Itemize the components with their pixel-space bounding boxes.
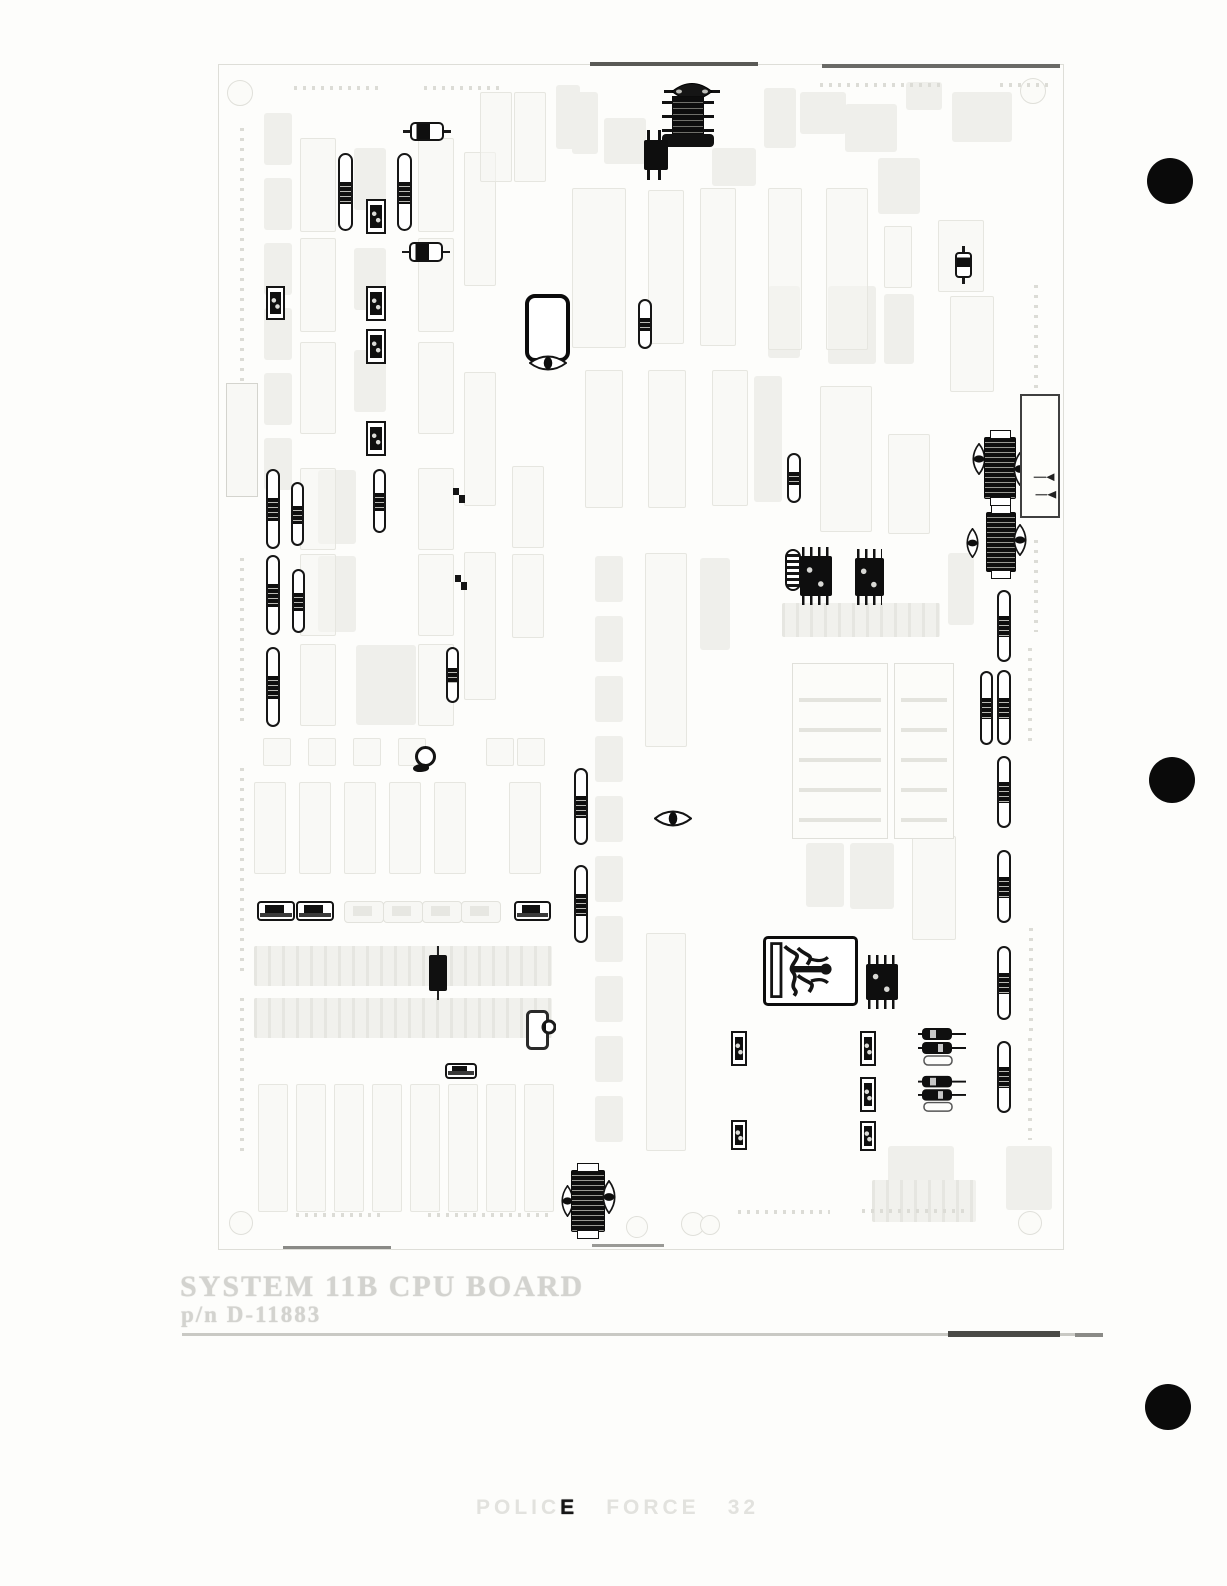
- faint-dots_h-shape: [1000, 80, 1052, 90]
- resistor: [292, 569, 305, 633]
- faint-res-shape: [422, 901, 462, 923]
- resistor: [514, 901, 551, 921]
- diode-pair: [918, 1026, 966, 1068]
- faint-fill-shape: [595, 676, 623, 722]
- faint-dots_h-shape: [862, 1203, 968, 1219]
- resistor: [787, 453, 801, 503]
- faint-circle-shape: [700, 1215, 720, 1235]
- faint-fill-shape: [712, 148, 756, 186]
- faint-v-shape: [418, 138, 454, 232]
- faint-fill-shape: [800, 92, 846, 134]
- faint-v-shape: [308, 738, 336, 766]
- resistor: [266, 555, 280, 635]
- board-edge-line: [590, 62, 758, 66]
- footer-page-number: 32: [728, 1496, 759, 1519]
- component-with-knob: [526, 1010, 556, 1050]
- marker: [413, 746, 435, 772]
- faint-v-shape: [418, 468, 454, 550]
- faint-v-shape: [300, 342, 336, 434]
- faint-dots_v-shape: [232, 998, 252, 1154]
- faint-fill-shape: [754, 376, 782, 502]
- resistor: [257, 901, 295, 921]
- faint-v-shape: [300, 138, 336, 232]
- transistor-small-package: [644, 140, 668, 170]
- binder-hole-dot: [1147, 158, 1193, 204]
- faint-v-shape: [418, 342, 454, 434]
- faint-v-shape: [418, 554, 454, 636]
- faint-dots_h-shape: [296, 1208, 384, 1222]
- faint-dots_h-shape: [738, 1204, 830, 1220]
- faint-v-shape: [884, 226, 912, 288]
- faint-fill-shape: [595, 616, 623, 662]
- faint-v-shape: [700, 188, 736, 346]
- faint-band-shape: [254, 946, 552, 986]
- resistor: [997, 756, 1011, 828]
- faint-dots_h-shape: [294, 82, 380, 94]
- faint-v-shape: [826, 188, 868, 350]
- resistor: [997, 946, 1011, 1020]
- faint-fill-shape: [845, 104, 897, 152]
- board-part-number: p/n D-11883: [181, 1302, 321, 1328]
- jumper-mark: [455, 575, 467, 590]
- jumper-mark: [453, 488, 465, 503]
- board-title: SYSTEM 11B CPU BOARD: [180, 1270, 584, 1304]
- faint-v-shape: [585, 370, 623, 508]
- faint-v-shape: [646, 933, 686, 1151]
- faint-fill-shape: [884, 294, 914, 364]
- footer-word-faint: POLIC: [476, 1496, 560, 1519]
- faint-dots_h-shape: [424, 82, 504, 94]
- binder-hole-dot: [1149, 757, 1195, 803]
- faint-v-shape: [480, 92, 512, 182]
- faint-v-shape: [648, 190, 684, 344]
- component: [366, 199, 386, 234]
- resistor: [980, 671, 993, 745]
- faint-v-shape: [768, 188, 802, 350]
- component: [731, 1031, 747, 1066]
- resistor: [373, 469, 386, 533]
- faint-fill-shape: [264, 178, 292, 230]
- faint-fill-shape: [850, 843, 894, 909]
- footer-word: FORCE: [606, 1496, 700, 1519]
- component: [860, 1077, 876, 1112]
- faint-circle-shape: [1018, 1211, 1042, 1235]
- faint-dots_v-shape: [1016, 648, 1044, 746]
- solder-eye: [654, 810, 692, 827]
- faint-fill-shape: [1006, 1146, 1052, 1210]
- resistor: [638, 299, 652, 349]
- faint-v-shape: [512, 466, 544, 548]
- connector-outline: [1020, 394, 1060, 518]
- faint-fill-shape: [878, 158, 920, 214]
- faint-v-shape: [448, 1084, 478, 1212]
- component: [266, 286, 285, 320]
- faint-v-shape: [263, 738, 291, 766]
- faint-v-shape: [434, 782, 466, 874]
- faint-sip-shape: [894, 663, 954, 839]
- solder-eye: [1013, 524, 1027, 556]
- faint-res-shape: [383, 901, 423, 923]
- binder-hole-dot: [1145, 1384, 1191, 1430]
- faint-fill-shape: [595, 1036, 623, 1082]
- faint-circle-shape: [626, 1216, 648, 1238]
- component: [366, 286, 386, 321]
- faint-fill-shape: [595, 856, 623, 902]
- large-capacitor: [525, 294, 570, 362]
- faint-v-shape: [517, 738, 545, 766]
- component: [860, 1031, 876, 1066]
- solder-eye: [602, 1180, 616, 1214]
- faint-dots_h-shape: [428, 1208, 550, 1222]
- resistor: [574, 865, 588, 943]
- resistor: [445, 1063, 477, 1079]
- dip-component: [866, 964, 898, 1000]
- faint-dots_v-shape: [1018, 928, 1044, 1034]
- diode: [403, 122, 451, 141]
- faint-fill-shape: [604, 118, 646, 164]
- faint-v-shape: [300, 554, 336, 636]
- dip-component: [800, 556, 832, 596]
- diode-pair: [918, 1074, 966, 1114]
- battery-holder: [763, 936, 858, 1006]
- faint-dots_v-shape: [1022, 285, 1050, 393]
- faint-v-shape: [820, 386, 872, 532]
- faint-v-shape: [912, 836, 956, 940]
- resistor: [997, 1041, 1011, 1113]
- faint-v-shape: [300, 644, 336, 726]
- faint-v-shape: [648, 370, 686, 508]
- faint-v-shape: [464, 552, 496, 700]
- faint-fill-shape: [952, 92, 1012, 142]
- faint-dots_v-shape: [232, 768, 252, 972]
- faint-v-shape: [410, 1084, 440, 1212]
- solder-eye: [966, 528, 979, 558]
- faint-fill-shape: [264, 113, 292, 165]
- faint-fill-shape: [264, 373, 292, 425]
- faint-sip-shape: [792, 663, 888, 839]
- faint-fill-shape: [572, 92, 598, 154]
- ribbed-component: [571, 1170, 605, 1232]
- faint-v-shape: [258, 1084, 288, 1212]
- faint-v-shape: [344, 782, 376, 874]
- resistor: [266, 469, 280, 549]
- component: [366, 329, 386, 364]
- dip-component: [855, 558, 884, 596]
- faint-v-shape: [712, 370, 748, 506]
- resistor: [397, 153, 412, 231]
- faint-v-shape: [888, 434, 930, 534]
- faint-v-shape: [296, 1084, 326, 1212]
- faint-fill-shape: [948, 553, 974, 625]
- faint-res-shape: [344, 901, 384, 923]
- faint-fill-shape: [764, 88, 796, 148]
- board-edge-line: [948, 1331, 1060, 1337]
- faint-fill-shape: [806, 843, 844, 907]
- faint-res-shape: [461, 901, 501, 923]
- diode: [955, 246, 972, 284]
- faint-circle-shape: [227, 80, 253, 106]
- faint-v-shape: [334, 1084, 364, 1212]
- resistor: [446, 647, 459, 703]
- faint-dots_v-shape: [232, 558, 252, 722]
- board-edge-line: [592, 1244, 664, 1247]
- board-edge-line: [283, 1246, 391, 1249]
- faint-v-shape: [464, 372, 496, 506]
- resistor: [296, 901, 334, 921]
- faint-circle-shape: [229, 1211, 253, 1235]
- faint-v-shape: [524, 1084, 554, 1212]
- resistor: [266, 647, 280, 727]
- faint-fill-shape: [595, 796, 623, 842]
- faint-fill-shape: [356, 645, 416, 725]
- ribbed-component: [984, 437, 1016, 499]
- faint-dots_h-shape: [820, 80, 942, 90]
- component: [731, 1120, 747, 1150]
- resistor: [338, 153, 353, 231]
- board-edge-line: [1075, 1333, 1103, 1337]
- faint-band-shape: [782, 603, 940, 637]
- striped-capacitor: [785, 549, 801, 591]
- page-footer: POLICEFORCE32: [476, 1496, 759, 1520]
- component: [366, 421, 386, 456]
- faint-fill-shape: [700, 558, 730, 650]
- faint-v-shape: [950, 296, 994, 392]
- resistor: [997, 850, 1011, 923]
- resistor: [291, 482, 304, 546]
- transistor-bracket: [662, 134, 714, 147]
- faint-v-shape: [645, 553, 687, 747]
- diode: [402, 242, 450, 262]
- faint-v-shape: [509, 782, 541, 874]
- faint-dots_v-shape: [1016, 1038, 1044, 1140]
- faint-v-shape: [254, 782, 286, 874]
- faint-band-shape: [254, 998, 552, 1038]
- faint-v-shape: [512, 554, 544, 638]
- faint-fill-shape: [595, 556, 623, 602]
- faint-conn-shape: [226, 383, 258, 497]
- standing-resistor: [429, 955, 447, 991]
- resistor: [574, 768, 588, 845]
- component: [860, 1121, 876, 1151]
- faint-fill-shape: [595, 736, 623, 782]
- faint-v-shape: [486, 1084, 516, 1212]
- faint-v-shape: [300, 468, 336, 550]
- faint-fill-shape: [595, 1096, 623, 1142]
- faint-v-shape: [514, 92, 546, 182]
- resistor: [997, 670, 1011, 745]
- faint-fill-shape: [595, 916, 623, 962]
- ribbed-component: [986, 512, 1016, 572]
- scanned-manual-page: SYSTEM 11B CPU BOARD p/n D-11883 POLICEF…: [0, 0, 1227, 1586]
- board-edge-line: [822, 64, 1060, 68]
- faint-v-shape: [299, 782, 331, 874]
- faint-v-shape: [486, 738, 514, 766]
- faint-v-shape: [389, 782, 421, 874]
- solder-eye: [529, 355, 567, 371]
- faint-v-shape: [372, 1084, 402, 1212]
- faint-v-shape: [572, 188, 626, 348]
- faint-v-shape: [300, 238, 336, 332]
- faint-v-shape: [353, 738, 381, 766]
- resistor: [997, 590, 1011, 662]
- footer-letter-dark: E: [560, 1496, 578, 1519]
- faint-fill-shape: [595, 976, 623, 1022]
